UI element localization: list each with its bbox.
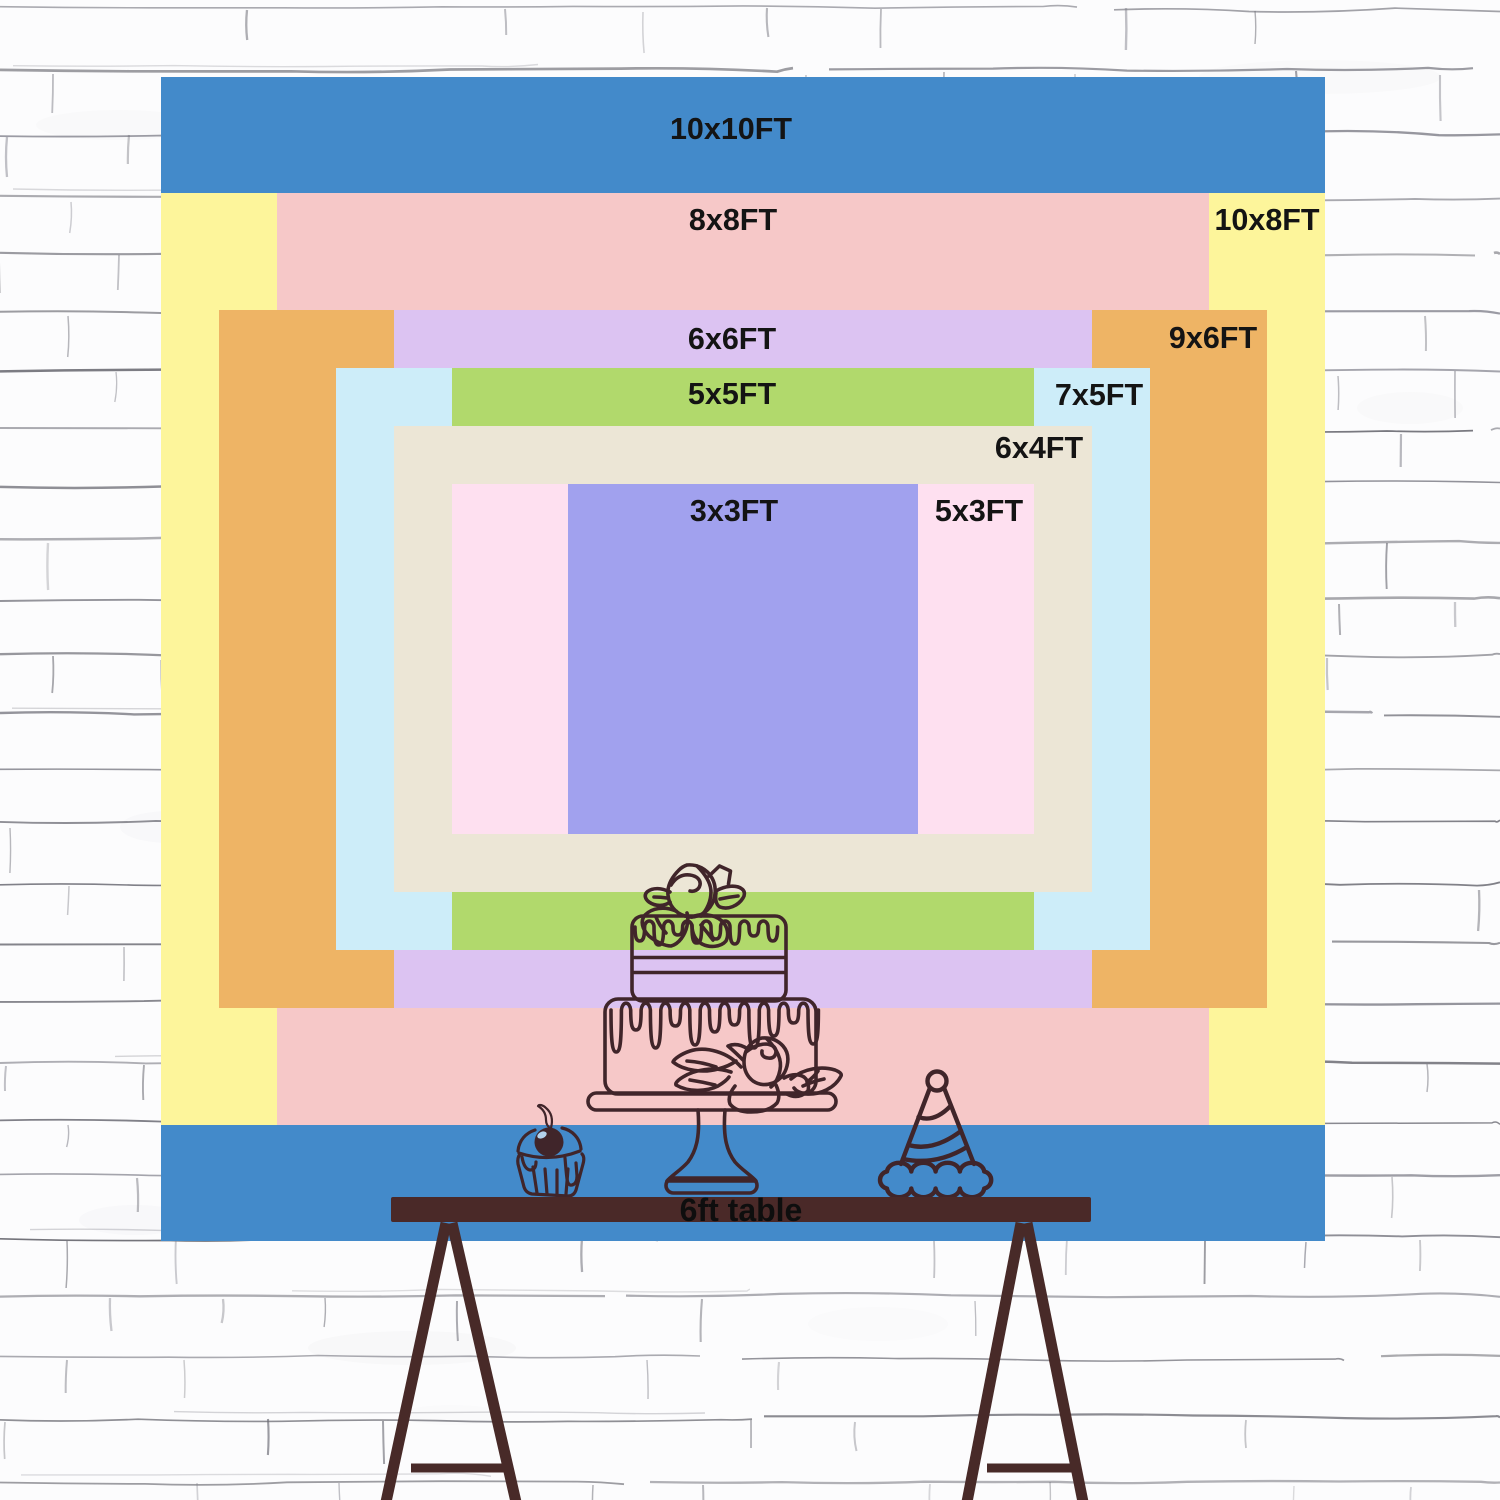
svg-text:9x6FT: 9x6FT [1169, 321, 1258, 355]
svg-text:5x5FT: 5x5FT [688, 377, 777, 411]
svg-text:5x3FT: 5x3FT [935, 494, 1024, 528]
svg-text:10x10FT: 10x10FT [670, 112, 792, 146]
svg-text:3x3FT: 3x3FT [690, 494, 779, 528]
svg-text:6ft table: 6ft table [680, 1192, 803, 1228]
svg-text:7x5FT: 7x5FT [1055, 378, 1144, 412]
svg-text:6x6FT: 6x6FT [688, 322, 777, 356]
svg-text:8x8FT: 8x8FT [689, 203, 778, 237]
svg-text:6x4FT: 6x4FT [995, 431, 1084, 465]
svg-text:10x8FT: 10x8FT [1214, 203, 1319, 237]
